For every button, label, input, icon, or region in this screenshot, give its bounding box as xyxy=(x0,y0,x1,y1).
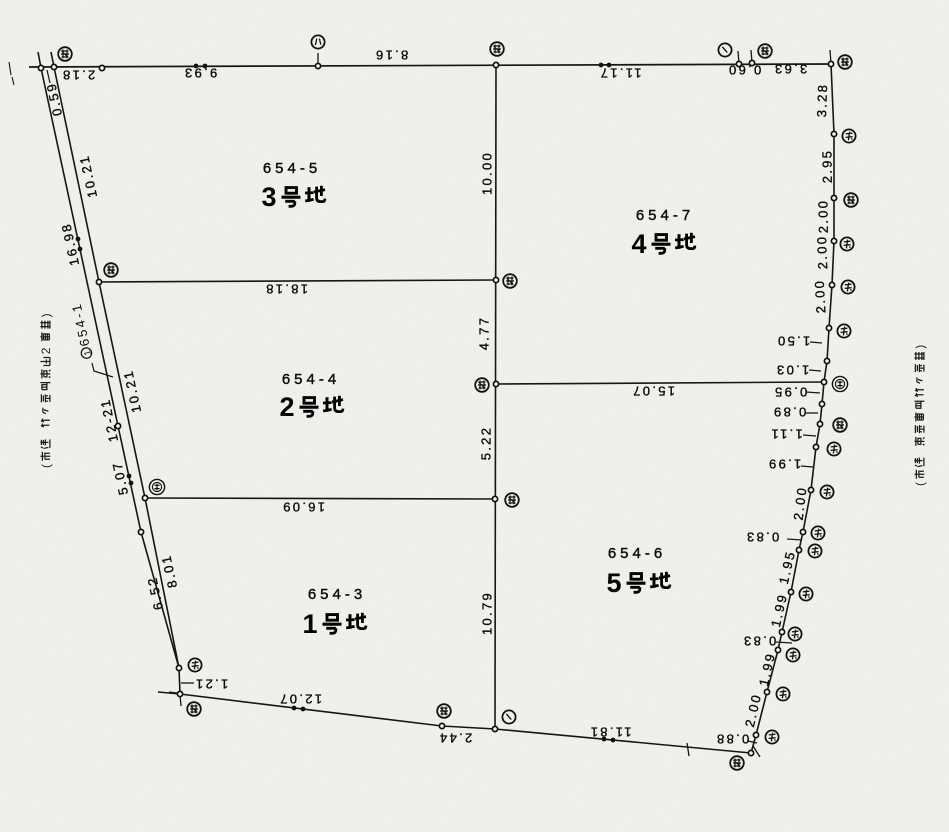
svg-text:0.88: 0.88 xyxy=(715,731,750,746)
svg-text:): ) xyxy=(913,345,927,349)
svg-text:1.21: 1.21 xyxy=(194,676,229,691)
svg-text:8.16: 8.16 xyxy=(374,47,409,62)
svg-text:4: 4 xyxy=(631,229,646,259)
svg-text:16.09: 16.09 xyxy=(281,499,325,514)
svg-text:654-5: 654-5 xyxy=(263,160,321,177)
svg-text:1: 1 xyxy=(302,609,317,639)
svg-text:1.99: 1.99 xyxy=(767,456,802,471)
svg-text:2.00: 2.00 xyxy=(815,199,831,234)
svg-text:10.00: 10.00 xyxy=(480,151,495,195)
svg-text:654-3: 654-3 xyxy=(308,586,366,603)
svg-text:18.18: 18.18 xyxy=(264,281,308,296)
svg-text:): ) xyxy=(39,313,53,317)
svg-text:0.83: 0.83 xyxy=(745,529,780,544)
svg-text:654-6: 654-6 xyxy=(608,545,666,562)
svg-text:1.50: 1.50 xyxy=(776,333,811,348)
svg-text:0.95: 0.95 xyxy=(773,384,808,399)
svg-text:(: ( xyxy=(39,464,53,468)
svg-text:654-4: 654-4 xyxy=(282,371,340,388)
svg-text:2.00: 2.00 xyxy=(814,234,830,269)
svg-text:12.07: 12.07 xyxy=(278,691,322,706)
svg-text:(: ( xyxy=(913,482,927,486)
svg-text:5: 5 xyxy=(606,568,621,598)
svg-text:2.95: 2.95 xyxy=(819,149,835,184)
svg-text:2.18: 2.18 xyxy=(61,67,96,82)
svg-text:10.79: 10.79 xyxy=(480,591,495,635)
svg-text:654-7: 654-7 xyxy=(636,207,694,224)
svg-text:11.81: 11.81 xyxy=(588,724,631,739)
svg-text:0.89: 0.89 xyxy=(772,404,807,419)
svg-text:11.17: 11.17 xyxy=(598,65,641,80)
svg-text:2: 2 xyxy=(39,347,53,354)
svg-text:9.93: 9.93 xyxy=(183,65,218,80)
svg-text:15.07: 15.07 xyxy=(631,383,675,398)
svg-text:3: 3 xyxy=(261,182,276,212)
svg-text:0.83: 0.83 xyxy=(742,633,777,648)
svg-text:1.03: 1.03 xyxy=(775,362,810,377)
svg-text:3.28: 3.28 xyxy=(814,82,830,117)
svg-text:4.77: 4.77 xyxy=(477,316,492,351)
svg-text:0.60: 0.60 xyxy=(727,62,762,77)
svg-text:5.22: 5.22 xyxy=(479,426,494,461)
svg-text:2.00: 2.00 xyxy=(812,278,829,313)
svg-text:3.63: 3.63 xyxy=(773,61,808,76)
svg-text:2.44: 2.44 xyxy=(438,730,473,745)
svg-text:2: 2 xyxy=(279,392,294,422)
svg-text:1.11: 1.11 xyxy=(769,426,803,441)
